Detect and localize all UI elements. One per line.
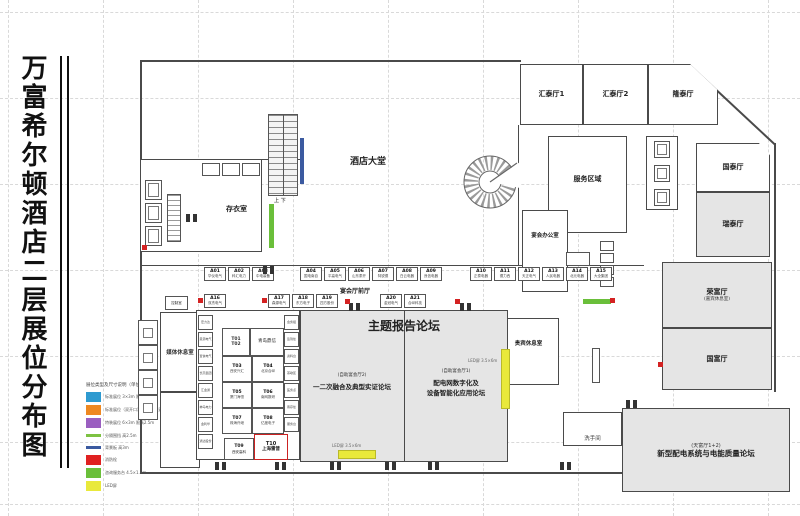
- booth-code: T02: [231, 342, 240, 347]
- booth: T07珠海许继: [222, 408, 252, 434]
- booth: A01华仪电气: [204, 267, 226, 281]
- door-icon: [275, 462, 286, 470]
- fire-hydrant-marker: [455, 299, 460, 304]
- room-restroom: 洗手间: [563, 412, 622, 446]
- legend-swatch: [86, 405, 101, 415]
- room-label: 宴会办公室: [531, 233, 559, 240]
- booth: A14北元电器: [566, 267, 588, 281]
- locker-rack: [167, 194, 181, 242]
- booth-name: 西安高科: [232, 450, 246, 454]
- led-screen-label: LED屏 3.5×6m: [332, 443, 361, 449]
- booth: 签到处: [284, 332, 299, 347]
- escalator-stairs: [268, 114, 298, 196]
- booth: A20金冠电气: [380, 294, 402, 308]
- elevator-icon: [654, 165, 670, 182]
- room-media-lounge: 媒体休息室: [160, 312, 200, 392]
- info-booth: [566, 252, 590, 266]
- booth: T03西安兴汇: [222, 356, 252, 382]
- hall-sublabel: (自助宴会厅1): [408, 368, 504, 374]
- led-screen-horizontal: [338, 450, 376, 459]
- booth: T06南网数研: [252, 382, 284, 408]
- room-label: 洗手间: [584, 434, 601, 442]
- title-divider: [60, 56, 69, 468]
- booth: A07特锐德: [372, 267, 394, 281]
- foyer-label: 宴会厅前厅: [340, 286, 370, 295]
- room-label: 汇泰厅1: [539, 90, 565, 98]
- booth: 思源电气: [198, 332, 213, 347]
- column: [592, 348, 600, 383]
- room-label: 汇泰厅2: [603, 90, 629, 98]
- booth: 寄存处: [284, 400, 299, 415]
- booth: 汇金通: [198, 383, 213, 398]
- backdrop-bar-blue: [300, 138, 304, 184]
- booth: A18东方电子: [292, 294, 314, 308]
- legend-swatch: [86, 468, 101, 478]
- forum-main-title: 主题报告论坛: [300, 317, 508, 334]
- booth: 神马电力: [198, 400, 213, 415]
- room-label: 贵宾休息室: [515, 341, 543, 348]
- legend-swatch: [86, 392, 101, 402]
- room-huitai2: 汇泰厅2: [583, 64, 648, 125]
- spiral-staircase: [460, 148, 520, 216]
- door-icon: [626, 400, 637, 408]
- fire-hydrant-marker: [198, 298, 203, 303]
- booth: A15大全集团: [590, 267, 612, 281]
- booth: A19四方股份: [316, 294, 338, 308]
- elevator-icon: [654, 189, 670, 206]
- led-screen-vertical: [501, 349, 510, 409]
- door-icon: [186, 214, 197, 222]
- signin-desk-bar: [269, 204, 274, 248]
- door-icon: [560, 462, 571, 470]
- booth: A21合纵科技: [404, 294, 426, 308]
- room-control: 控制室: [165, 296, 188, 310]
- door-icon: [215, 462, 226, 470]
- booth: A09良信电器: [420, 267, 442, 281]
- booth: 会务组: [284, 315, 299, 330]
- wall-cabinets: [138, 320, 158, 420]
- hall2-labels: (自助宴会厅2) 一二次融合及典型实证论坛: [302, 372, 402, 391]
- legend-swatch: [86, 446, 101, 449]
- room-huitai1: 汇泰厅1: [520, 64, 583, 125]
- room-rongfu: 荣富厅 (嘉宾休息室): [662, 262, 772, 328]
- booth: A05平高电气: [324, 267, 346, 281]
- legend-label: 分隔围挡 高2.5m: [105, 433, 137, 439]
- cloak-counter-row: [202, 163, 260, 176]
- door-icon: [349, 303, 360, 311]
- hall-title: 设备智能化应用论坛: [408, 387, 504, 397]
- floor-plan-canvas: 万富希尔顿酒店二层展位分布图 展位类型及尺寸说明（单位：m） 标准展位 3×3m…: [0, 0, 800, 516]
- legend-label: 消防栓: [105, 457, 117, 463]
- booth: A02科汇电力: [228, 267, 250, 281]
- forum-title: 新型配电系统与电能质量论坛: [657, 449, 755, 458]
- door-icon: [263, 266, 274, 274]
- booth: 资料台: [284, 349, 299, 364]
- booth: A04国电南自: [300, 267, 322, 281]
- room-tianfu-forum: (天富厅1+2) 新型配电系统与电能质量论坛: [622, 408, 790, 492]
- booth-t10-highlighted: T10 上海雷普: [254, 434, 288, 460]
- booth-name: 青岛鼎信: [258, 339, 276, 344]
- service-desk-bar: [583, 299, 611, 304]
- hall-sublabel: (自助宴会厅2): [302, 372, 402, 378]
- door-icon: [428, 462, 439, 470]
- booth-t01-t02: T01 T02: [222, 328, 250, 356]
- legend-label: 背景板 高3m: [105, 445, 129, 451]
- fire-hydrant-marker: [658, 362, 663, 367]
- booth: A08白云电器: [396, 267, 418, 281]
- wall-right: [774, 143, 776, 392]
- booth: 金利华: [198, 417, 213, 432]
- cloakroom-elevators: [145, 180, 162, 246]
- legend-item: LED屏: [86, 481, 204, 491]
- wall-bottom: [140, 472, 624, 474]
- booth: A17森源电气: [268, 294, 290, 308]
- legend-swatch: [86, 434, 101, 437]
- room-guotai: 国泰厅: [696, 143, 770, 192]
- booth: T08亿度电子: [252, 408, 284, 434]
- room-label: 荣富厅: [707, 288, 728, 296]
- fire-hydrant-marker: [345, 299, 350, 304]
- legend-label: 特装展位 6×3m 限高2.5m: [105, 420, 154, 426]
- booth-row-bottom-2: A17森源电气A18东方电子A19四方股份: [268, 294, 338, 308]
- page-title: 万富希尔顿酒店二层展位分布图: [14, 54, 51, 484]
- booth: A13人民电器: [542, 267, 564, 281]
- hall1-labels: (自助宴会厅1) 配电网数字化及 设备智能化应用论坛: [408, 368, 504, 397]
- room-label: 服务区域: [574, 175, 602, 183]
- booth-row-top-2: A04国电南自A05平高电气A06山东泰开A07特锐德A08白云电器A09良信电…: [300, 267, 442, 281]
- booth: 茶歇区: [284, 366, 299, 381]
- booth: A10正泰电器: [470, 267, 492, 281]
- room-label: 国泰厅: [723, 163, 744, 171]
- fire-hydrant-marker: [610, 298, 615, 303]
- legend-swatch: [86, 418, 101, 428]
- door-icon: [385, 462, 396, 470]
- room-sublabel: (嘉宾休息室): [704, 296, 730, 302]
- room-lobby-label: 酒店大堂: [350, 154, 386, 167]
- booth-row-bottom-3: A20金冠电气A21合纵科技: [380, 294, 426, 308]
- booth-name: 上海雷普: [262, 447, 280, 452]
- elevator-icon: [654, 141, 670, 158]
- fire-hydrant-marker: [262, 298, 267, 303]
- room-longtai: 隆泰厅: [648, 64, 718, 125]
- hall-title: 配电网数字化及: [408, 377, 504, 387]
- led-screen-label: LED屏 3.5×6m: [468, 358, 497, 364]
- room-lower-left: [160, 392, 200, 468]
- escalator-mark: 上 下: [274, 197, 286, 204]
- wall-top: [140, 60, 521, 62]
- room-ruitai: 瑞泰厅: [696, 192, 770, 257]
- t-booth-grid: T03西安兴汇 T04北京合纵 T05厦门海恒 T06南网数研 T07珠海许继 …: [222, 356, 284, 434]
- booth-row-bottom-1: A16双杰电气: [204, 294, 226, 308]
- booth: A06山东泰开: [348, 267, 370, 281]
- wall-corridor-a: [140, 265, 522, 266]
- room-label: 国富厅: [707, 355, 728, 363]
- booth: 长高集团: [198, 366, 213, 381]
- t-left-strip: 宏力达思源电气置信电气长高集团汇金通神马电力金利华通达股份: [198, 315, 213, 449]
- booth-t01-t02-name: 青岛鼎信: [250, 328, 284, 356]
- legend-swatch: [86, 481, 101, 491]
- room-guofu: 国富厅: [662, 328, 772, 390]
- booth: 置信电气: [198, 349, 213, 364]
- booth: 服务台: [284, 417, 299, 432]
- booth: T05厦门海恒: [222, 382, 252, 408]
- booth: 通达股份: [198, 434, 213, 449]
- forum-sublabel: (天富厅1+2): [691, 442, 720, 449]
- booth-t09: T09 西安高科: [224, 438, 254, 460]
- room-label: 隆泰厅: [673, 90, 694, 98]
- legend-swatch: [86, 455, 101, 465]
- booth: 医务点: [284, 383, 299, 398]
- door-icon: [460, 303, 471, 311]
- booth: A16双杰电气: [204, 294, 226, 308]
- legend-label: LED屏: [105, 483, 117, 489]
- t-right-strip: 会务组签到处资料台茶歇区医务点寄存处服务台: [284, 315, 299, 432]
- elevator-bank: [646, 136, 678, 210]
- booth: A11德力西: [494, 267, 516, 281]
- room-label: 存衣室: [226, 205, 247, 213]
- booth: 宏力达: [198, 315, 213, 330]
- booth: A12天正电气: [518, 267, 540, 281]
- fire-hydrant-marker: [142, 245, 147, 250]
- booth: T04北京合纵: [252, 356, 284, 382]
- hall-title: 一二次融合及典型实证论坛: [302, 381, 402, 391]
- room-label: 控制室: [171, 301, 182, 305]
- room-label: 瑞泰厅: [723, 220, 744, 228]
- door-icon: [330, 462, 341, 470]
- booth-row-top-3: A10正泰电器A11德力西A12天正电气A13人民电器A14北元电器A15大全集…: [470, 267, 612, 281]
- room-label: 媒体休息室: [166, 348, 194, 356]
